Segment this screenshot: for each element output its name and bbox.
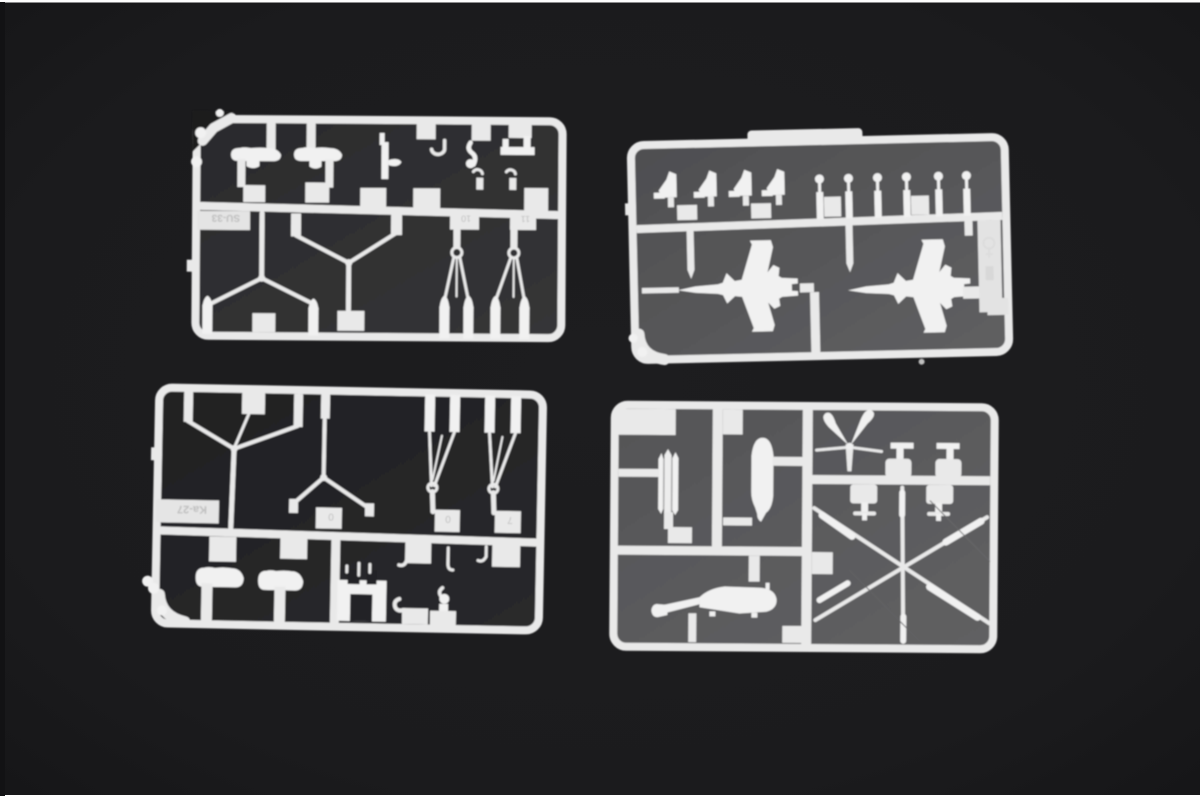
svg-text:0: 0 [328,511,334,522]
svg-text:SU-33: SU-33 [211,212,240,223]
svg-text:7: 7 [507,514,513,525]
svg-text:10: 10 [461,214,471,224]
svg-text:0: 0 [445,513,451,524]
svg-text:11: 11 [521,214,530,224]
svg-text:Ka-27: Ka-27 [177,503,207,516]
